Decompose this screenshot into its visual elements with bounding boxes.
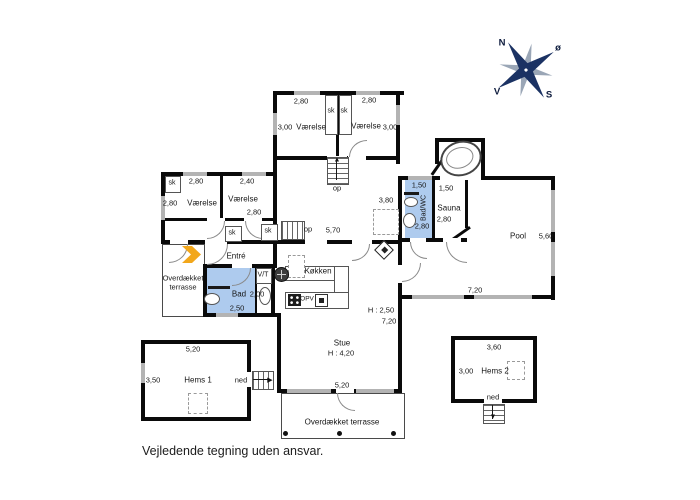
hems1-depth-label: 3,50 bbox=[146, 376, 161, 385]
bedroom-w1-width-label: 2,80 bbox=[189, 177, 204, 186]
skylight-outline bbox=[507, 361, 525, 380]
closet-box bbox=[339, 95, 352, 135]
stairs-down-label: ned bbox=[487, 393, 500, 402]
bad-name: Bad bbox=[232, 290, 246, 299]
bedroom-ne1-name: Værelse bbox=[296, 123, 326, 132]
compass-west-label: V bbox=[494, 87, 500, 98]
badwc-name: Bad/WC bbox=[421, 195, 428, 221]
bad-width-label: 2,00 bbox=[250, 290, 265, 299]
terrace-south-name: Overdækket terrasse bbox=[305, 418, 380, 427]
wall bbox=[398, 240, 402, 265]
wall bbox=[141, 417, 251, 421]
closet-label: sk bbox=[169, 180, 176, 187]
sauna-name: Sauna bbox=[437, 204, 460, 213]
window bbox=[242, 172, 266, 176]
skylight-outline bbox=[373, 209, 399, 235]
dishwasher-label: OPV bbox=[300, 296, 314, 303]
wall bbox=[435, 138, 439, 164]
wall bbox=[465, 180, 468, 228]
compass-east-label: ø bbox=[555, 43, 561, 54]
door-arc bbox=[352, 244, 370, 261]
stue-ceiling-label: H : 4,20 bbox=[328, 349, 354, 358]
stairs-arrow-right: ▶ bbox=[267, 376, 272, 384]
terrace-post bbox=[391, 431, 396, 436]
door-arc bbox=[446, 242, 467, 263]
window bbox=[356, 91, 380, 95]
hall-width-label: 5,70 bbox=[326, 226, 341, 235]
stairs-down-label: ned bbox=[235, 376, 248, 385]
door-arc bbox=[349, 140, 367, 157]
hems2-width-label: 3,60 bbox=[487, 343, 502, 352]
stue-terrace-width-label: 5,20 bbox=[335, 381, 350, 390]
shelf-bar bbox=[404, 192, 419, 195]
terrace-post bbox=[337, 431, 342, 436]
bedroom-ne2-name: Værelse bbox=[351, 122, 381, 131]
door-arc bbox=[410, 242, 427, 259]
bedroom-w2-width-label: 2,40 bbox=[240, 177, 255, 186]
sauna-width-label: 1,50 bbox=[439, 184, 454, 193]
window bbox=[408, 176, 432, 180]
wall bbox=[451, 336, 455, 403]
spa-tub-icon bbox=[436, 135, 487, 181]
stairs-arrow-up: ▲ bbox=[334, 157, 341, 164]
bedroom-w1-depth-label: 2,80 bbox=[163, 199, 178, 208]
bedroom-ne1-depth-label: 3,00 bbox=[278, 123, 293, 132]
toilet-icon bbox=[204, 293, 220, 305]
oven-icon bbox=[315, 294, 328, 307]
entrance-arrow-icon bbox=[182, 246, 201, 263]
wall bbox=[451, 336, 537, 340]
stue-width-label: 7,20 bbox=[382, 317, 397, 326]
stairs-arrow-down: ▼ bbox=[490, 414, 497, 421]
bad-depth-label: 2,50 bbox=[230, 304, 245, 313]
closet-label: sk bbox=[229, 230, 236, 237]
hall-depth-label: 3,80 bbox=[379, 196, 394, 205]
hems2-depth-label: 3,00 bbox=[459, 367, 474, 376]
window bbox=[356, 389, 394, 393]
window bbox=[294, 91, 320, 95]
closet-label: sk bbox=[341, 108, 348, 115]
pool-name: Pool bbox=[510, 232, 526, 241]
wall bbox=[203, 313, 279, 317]
closet-label: sk bbox=[328, 108, 335, 115]
window bbox=[551, 190, 555, 232]
door-arc bbox=[207, 244, 228, 265]
closet-box bbox=[325, 95, 338, 135]
door-opening bbox=[247, 372, 251, 387]
vt-name: V/T bbox=[258, 272, 269, 279]
hems1-name: Hems 1 bbox=[184, 376, 212, 385]
pool-depth-label: 5,60 bbox=[539, 232, 554, 241]
badwc-depth-label: 2,80 bbox=[415, 222, 430, 231]
sauna-depth-label: 2,80 bbox=[437, 215, 452, 224]
closet-label: sk bbox=[265, 228, 272, 235]
stairs-up-label: op bbox=[304, 225, 312, 234]
window bbox=[474, 295, 532, 299]
skylight-outline bbox=[188, 393, 208, 414]
stue-name: Stue bbox=[334, 339, 350, 348]
window bbox=[183, 172, 207, 176]
disclaimer-text: Vejledende tegning uden ansvar. bbox=[142, 444, 323, 458]
shower-wall-bar bbox=[208, 286, 230, 289]
bedroom-w2-name: Værelse bbox=[228, 195, 258, 204]
window bbox=[412, 295, 464, 299]
badwc-width-label: 1,50 bbox=[412, 181, 427, 190]
compass-south-label: S bbox=[546, 90, 552, 101]
wall bbox=[481, 176, 555, 180]
sink-icon bbox=[274, 267, 289, 282]
stue-ceiling-low-label: H : 2,50 bbox=[368, 306, 394, 315]
door-arc bbox=[207, 221, 225, 239]
floor-plan: ▲ ▶ ▼ N ø V S bbox=[0, 0, 700, 500]
window bbox=[273, 113, 277, 135]
wall bbox=[533, 336, 537, 403]
stove-icon bbox=[288, 294, 301, 306]
window bbox=[287, 389, 331, 393]
wall bbox=[220, 172, 223, 221]
bedroom-w1-name: Værelse bbox=[187, 199, 217, 208]
stairs-up-label: op bbox=[333, 184, 341, 193]
terrace-post bbox=[283, 431, 288, 436]
compass-north-label: N bbox=[499, 38, 506, 49]
bedroom-w2-depth-label: 2,80 bbox=[247, 208, 262, 217]
door-opening bbox=[305, 240, 327, 244]
pool-width-label: 7,20 bbox=[468, 286, 483, 295]
wall bbox=[141, 340, 251, 344]
bedroom-ne2-depth-label: 3,00 bbox=[383, 123, 398, 132]
skylight-outline bbox=[288, 255, 305, 278]
toilet-icon bbox=[404, 197, 418, 207]
kitchen-name: Køkken bbox=[304, 267, 331, 276]
wall bbox=[277, 313, 281, 393]
bedroom-ne1-width-label: 2,80 bbox=[294, 97, 309, 106]
wall bbox=[398, 283, 402, 393]
hems2-name: Hems 2 bbox=[481, 367, 509, 376]
bedroom-ne2-width-label: 2,80 bbox=[362, 96, 377, 105]
stairs-up-west bbox=[281, 221, 305, 240]
window bbox=[551, 242, 555, 276]
door-arc bbox=[402, 263, 421, 282]
wall bbox=[432, 178, 435, 242]
entre-name: Entré bbox=[226, 252, 245, 261]
window bbox=[141, 363, 145, 383]
window bbox=[216, 313, 238, 317]
hems1-width-label: 5,20 bbox=[186, 345, 201, 354]
terrace-west-name: Overdækket terrasse bbox=[159, 274, 207, 293]
